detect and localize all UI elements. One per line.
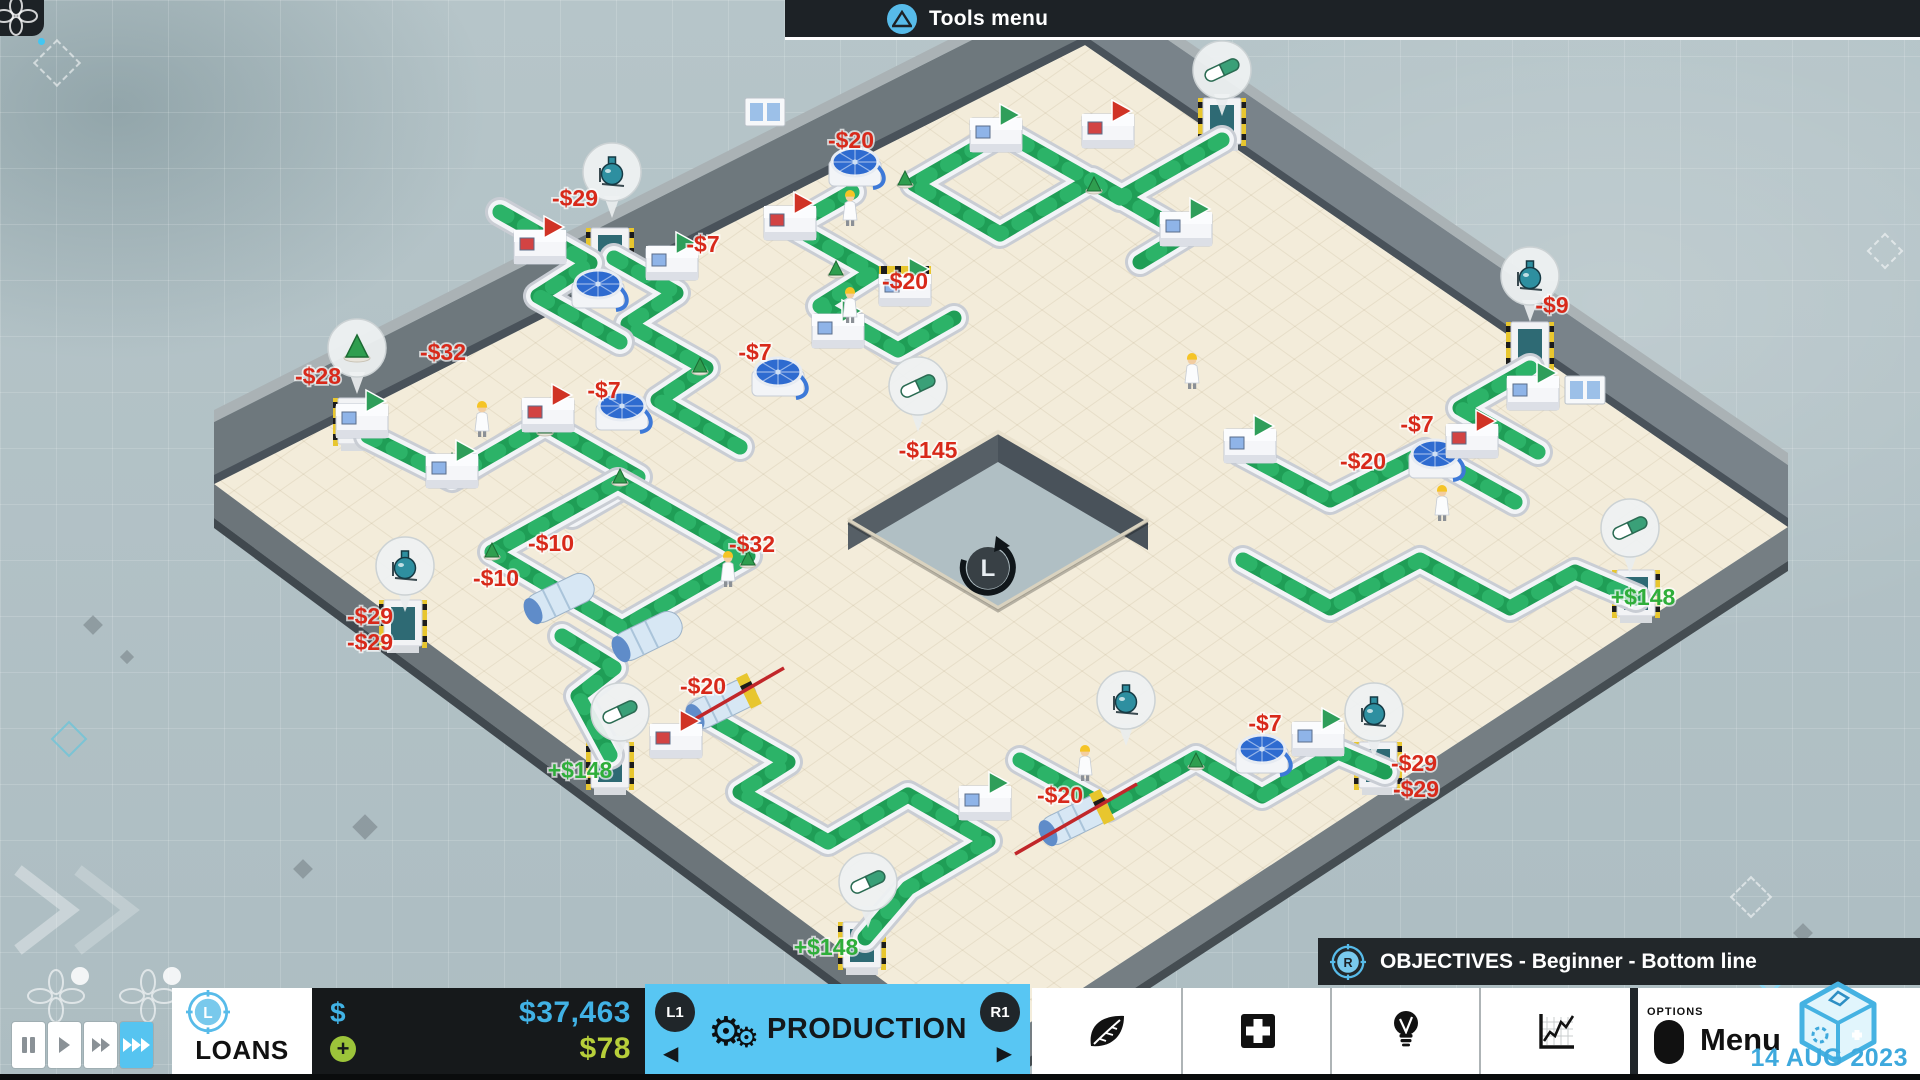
- bottom-strip: [0, 1074, 1920, 1080]
- cursor-dot: [38, 38, 45, 45]
- ingredients-button[interactable]: [1032, 988, 1181, 1074]
- cost-label: -$7: [1400, 411, 1433, 437]
- options-button-icon: [1654, 1020, 1684, 1064]
- currency-symbol: $: [330, 997, 346, 1029]
- research-button[interactable]: [1330, 988, 1479, 1074]
- dpad-flower-decor: [14, 964, 194, 1024]
- revenue-label: +$148: [1611, 584, 1676, 610]
- income-value: $78: [579, 1032, 631, 1066]
- loans-button[interactable]: L LOANS: [172, 988, 312, 1074]
- cost-label: -$7: [686, 231, 719, 257]
- line-chart-icon: [1533, 1009, 1579, 1053]
- dpad-corner-icon: [0, 0, 44, 36]
- svg-text:L: L: [203, 1005, 212, 1022]
- cost-label: -$32: [729, 531, 775, 557]
- options-button-hint: OPTIONS: [1647, 1006, 1704, 1018]
- cost-label: -$29: [1391, 750, 1437, 776]
- cost-label: -$7: [738, 339, 771, 365]
- r-stick-icon: R: [1330, 944, 1366, 980]
- cost-label: -$7: [587, 377, 620, 403]
- cost-label: -$20: [680, 673, 726, 699]
- wall-window: [745, 98, 785, 126]
- fast-forward-button[interactable]: [84, 1022, 117, 1068]
- l1-button-icon: L1: [655, 992, 695, 1032]
- r1-button-icon: R1: [980, 992, 1020, 1032]
- cost-label: -$10: [473, 565, 519, 591]
- pause-button[interactable]: [12, 1022, 45, 1068]
- cost-label: -$29: [1393, 776, 1439, 802]
- prev-tab-arrow[interactable]: ◀: [663, 1041, 678, 1066]
- reports-button[interactable]: [1479, 988, 1630, 1074]
- cost-label: -$29: [347, 629, 393, 655]
- svg-text:R: R: [1343, 955, 1352, 969]
- lightbulb-icon: [1383, 1008, 1429, 1054]
- triangle-button-icon: [887, 4, 917, 34]
- cost-label: -$145: [899, 437, 958, 463]
- cost-label: -$7: [1248, 710, 1281, 736]
- playback-controls: [12, 1022, 153, 1068]
- balance-value: $37,463: [519, 996, 631, 1030]
- cost-label: -$10: [528, 530, 574, 556]
- medical-cross-icon: [1234, 1010, 1280, 1052]
- objectives-label: OBJECTIVES - Beginner - Bottom line: [1380, 950, 1757, 974]
- machine-bluedisc[interactable]: [829, 148, 884, 188]
- cures-button[interactable]: [1181, 988, 1330, 1074]
- money-panel: $ $37,463 + $78: [312, 988, 645, 1074]
- svg-text:L: L: [981, 555, 996, 582]
- cost-label: -$9: [1535, 292, 1568, 318]
- panel-divider: [1630, 988, 1638, 1074]
- machine-bluedisc[interactable]: [1236, 735, 1291, 775]
- cost-label: -$32: [420, 339, 466, 365]
- cost-label: -$20: [882, 268, 928, 294]
- tools-menu-bar[interactable]: Tools menu: [785, 0, 1920, 40]
- income-plus-icon: +: [330, 1036, 356, 1062]
- cost-label: -$20: [1037, 782, 1083, 808]
- tab-production[interactable]: L1 R1 ◀ ▶ ⚙ ⚙ PRODUCTION: [645, 984, 1030, 1074]
- play-button[interactable]: [48, 1022, 81, 1068]
- factory-viewport[interactable]: L-$20-$29-$7-$20-$32-$28-$7-$7-$10-$10-$…: [0, 0, 1920, 1080]
- revenue-label: +$148: [794, 934, 859, 960]
- tools-menu-label: Tools menu: [929, 7, 1048, 31]
- cost-label: -$20: [1340, 448, 1386, 474]
- wall-window: [1565, 376, 1605, 404]
- leaf-icon: [1084, 1010, 1130, 1052]
- game-screen: L-$20-$29-$7-$20-$32-$28-$7-$7-$10-$10-$…: [0, 0, 1920, 1080]
- cost-label: -$29: [552, 185, 598, 211]
- game-date: 14 AUG 2023: [1700, 1044, 1908, 1073]
- fastest-speed-button[interactable]: [120, 1022, 153, 1068]
- cost-label: -$28: [295, 363, 341, 389]
- cost-label: -$20: [828, 127, 874, 153]
- cost-label: -$29: [347, 603, 393, 629]
- gears-icon: ⚙ ⚙: [708, 1012, 759, 1052]
- production-tab-label: PRODUCTION: [767, 1013, 967, 1046]
- l-stick-icon: L: [186, 990, 230, 1034]
- machine-bluedisc[interactable]: [572, 270, 627, 310]
- loans-label: LOANS: [195, 1035, 289, 1066]
- next-tab-arrow[interactable]: ▶: [997, 1041, 1012, 1066]
- revenue-label: +$148: [548, 757, 613, 783]
